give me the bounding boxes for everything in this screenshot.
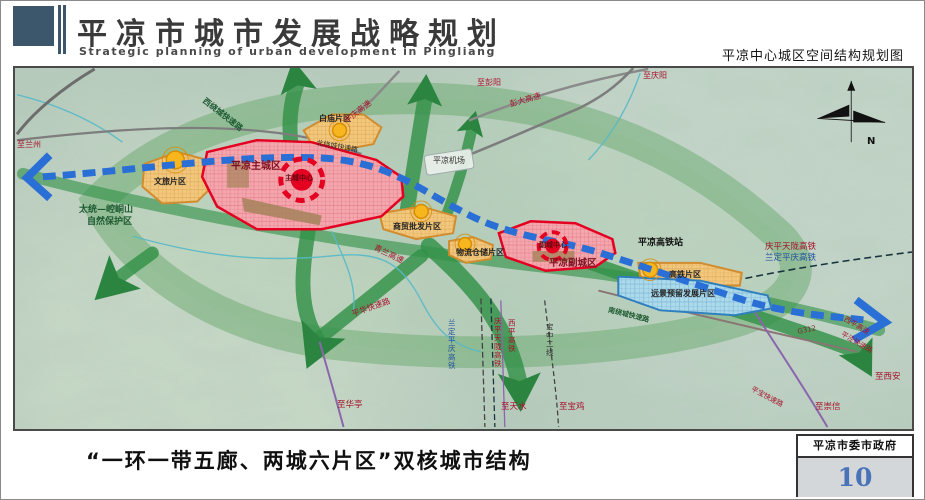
label-to-tianshui: 至天水 bbox=[501, 403, 527, 412]
compass: N bbox=[841, 138, 901, 188]
label-to-chongxin: 至崇信 bbox=[815, 403, 841, 412]
label-baozhong-line-v: 宝中二线 bbox=[545, 323, 553, 357]
page-subtitle-en: Strategic planning of urban development … bbox=[79, 45, 496, 58]
compass-n-label: N bbox=[867, 136, 875, 147]
label-sub-city: 平凉副城区 bbox=[549, 259, 597, 269]
footer: “一环一带五廊、两城六片区”双核城市结构 平凉市委市政府 10 bbox=[1, 431, 925, 500]
label-xiping-hsr-v: 西平高铁 bbox=[507, 319, 515, 353]
page: 平凉市城市发展战略规划 Strategic planning of urban … bbox=[0, 0, 925, 500]
label-to-qingyang: 至庆阳 bbox=[643, 72, 667, 81]
label-main-city: 平凉主城区 bbox=[231, 161, 281, 172]
label-ldpq-hsr: 兰定平庆高铁 bbox=[765, 254, 816, 263]
page-number-box: 平凉市委市政府 10 bbox=[796, 434, 914, 497]
label-hsr-district: 高铁片区 bbox=[669, 271, 701, 280]
label-qptl-hsr: 庆平天陇高铁 bbox=[765, 243, 816, 252]
label-to-lanzhou: 至兰州 bbox=[17, 141, 41, 150]
label-wenlv-district: 文旅片区 bbox=[154, 178, 186, 187]
structure-caption: “一环一带五廊、两城六片区”双核城市结构 bbox=[86, 445, 532, 475]
label-to-pengyang: 至彭阳 bbox=[477, 79, 501, 88]
label-logistics-district: 物流仓储片区 bbox=[456, 249, 504, 258]
logo-bar-1 bbox=[58, 5, 61, 54]
label-hsr-station: 平凉高铁站 bbox=[638, 239, 683, 249]
logo-bar-2 bbox=[63, 5, 66, 54]
header: 平凉市城市发展战略规划 Strategic planning of urban … bbox=[1, 1, 925, 64]
label-ldpq-hsr-v: 兰定平庆高铁 bbox=[447, 319, 455, 370]
org-name: 平凉市委市政府 bbox=[798, 436, 912, 458]
page-number: 10 bbox=[798, 458, 912, 497]
label-trade-district: 商贸批发片区 bbox=[393, 223, 441, 232]
label-to-huating: 至华亭 bbox=[337, 401, 363, 410]
map-title: 平凉中心城区空间结构规划图 bbox=[722, 45, 904, 64]
label-main-center: 主城中心 bbox=[285, 175, 313, 183]
label-nature-reserve-1: 太统—崆峒山 bbox=[79, 206, 133, 216]
label-reserved-district: 远景预留发展片区 bbox=[651, 290, 715, 299]
label-nature-reserve-2: 自然保护区 bbox=[87, 218, 132, 228]
label-sub-center: 副城中心 bbox=[539, 242, 567, 250]
label-airport: 平凉机场 bbox=[433, 157, 465, 166]
label-qptl-hsr-v: 庆平天陇高铁 bbox=[493, 317, 501, 368]
logo-square bbox=[13, 6, 54, 46]
label-to-xian: 至西安 bbox=[875, 373, 901, 382]
label-to-baoji: 至宝鸡 bbox=[559, 403, 585, 412]
